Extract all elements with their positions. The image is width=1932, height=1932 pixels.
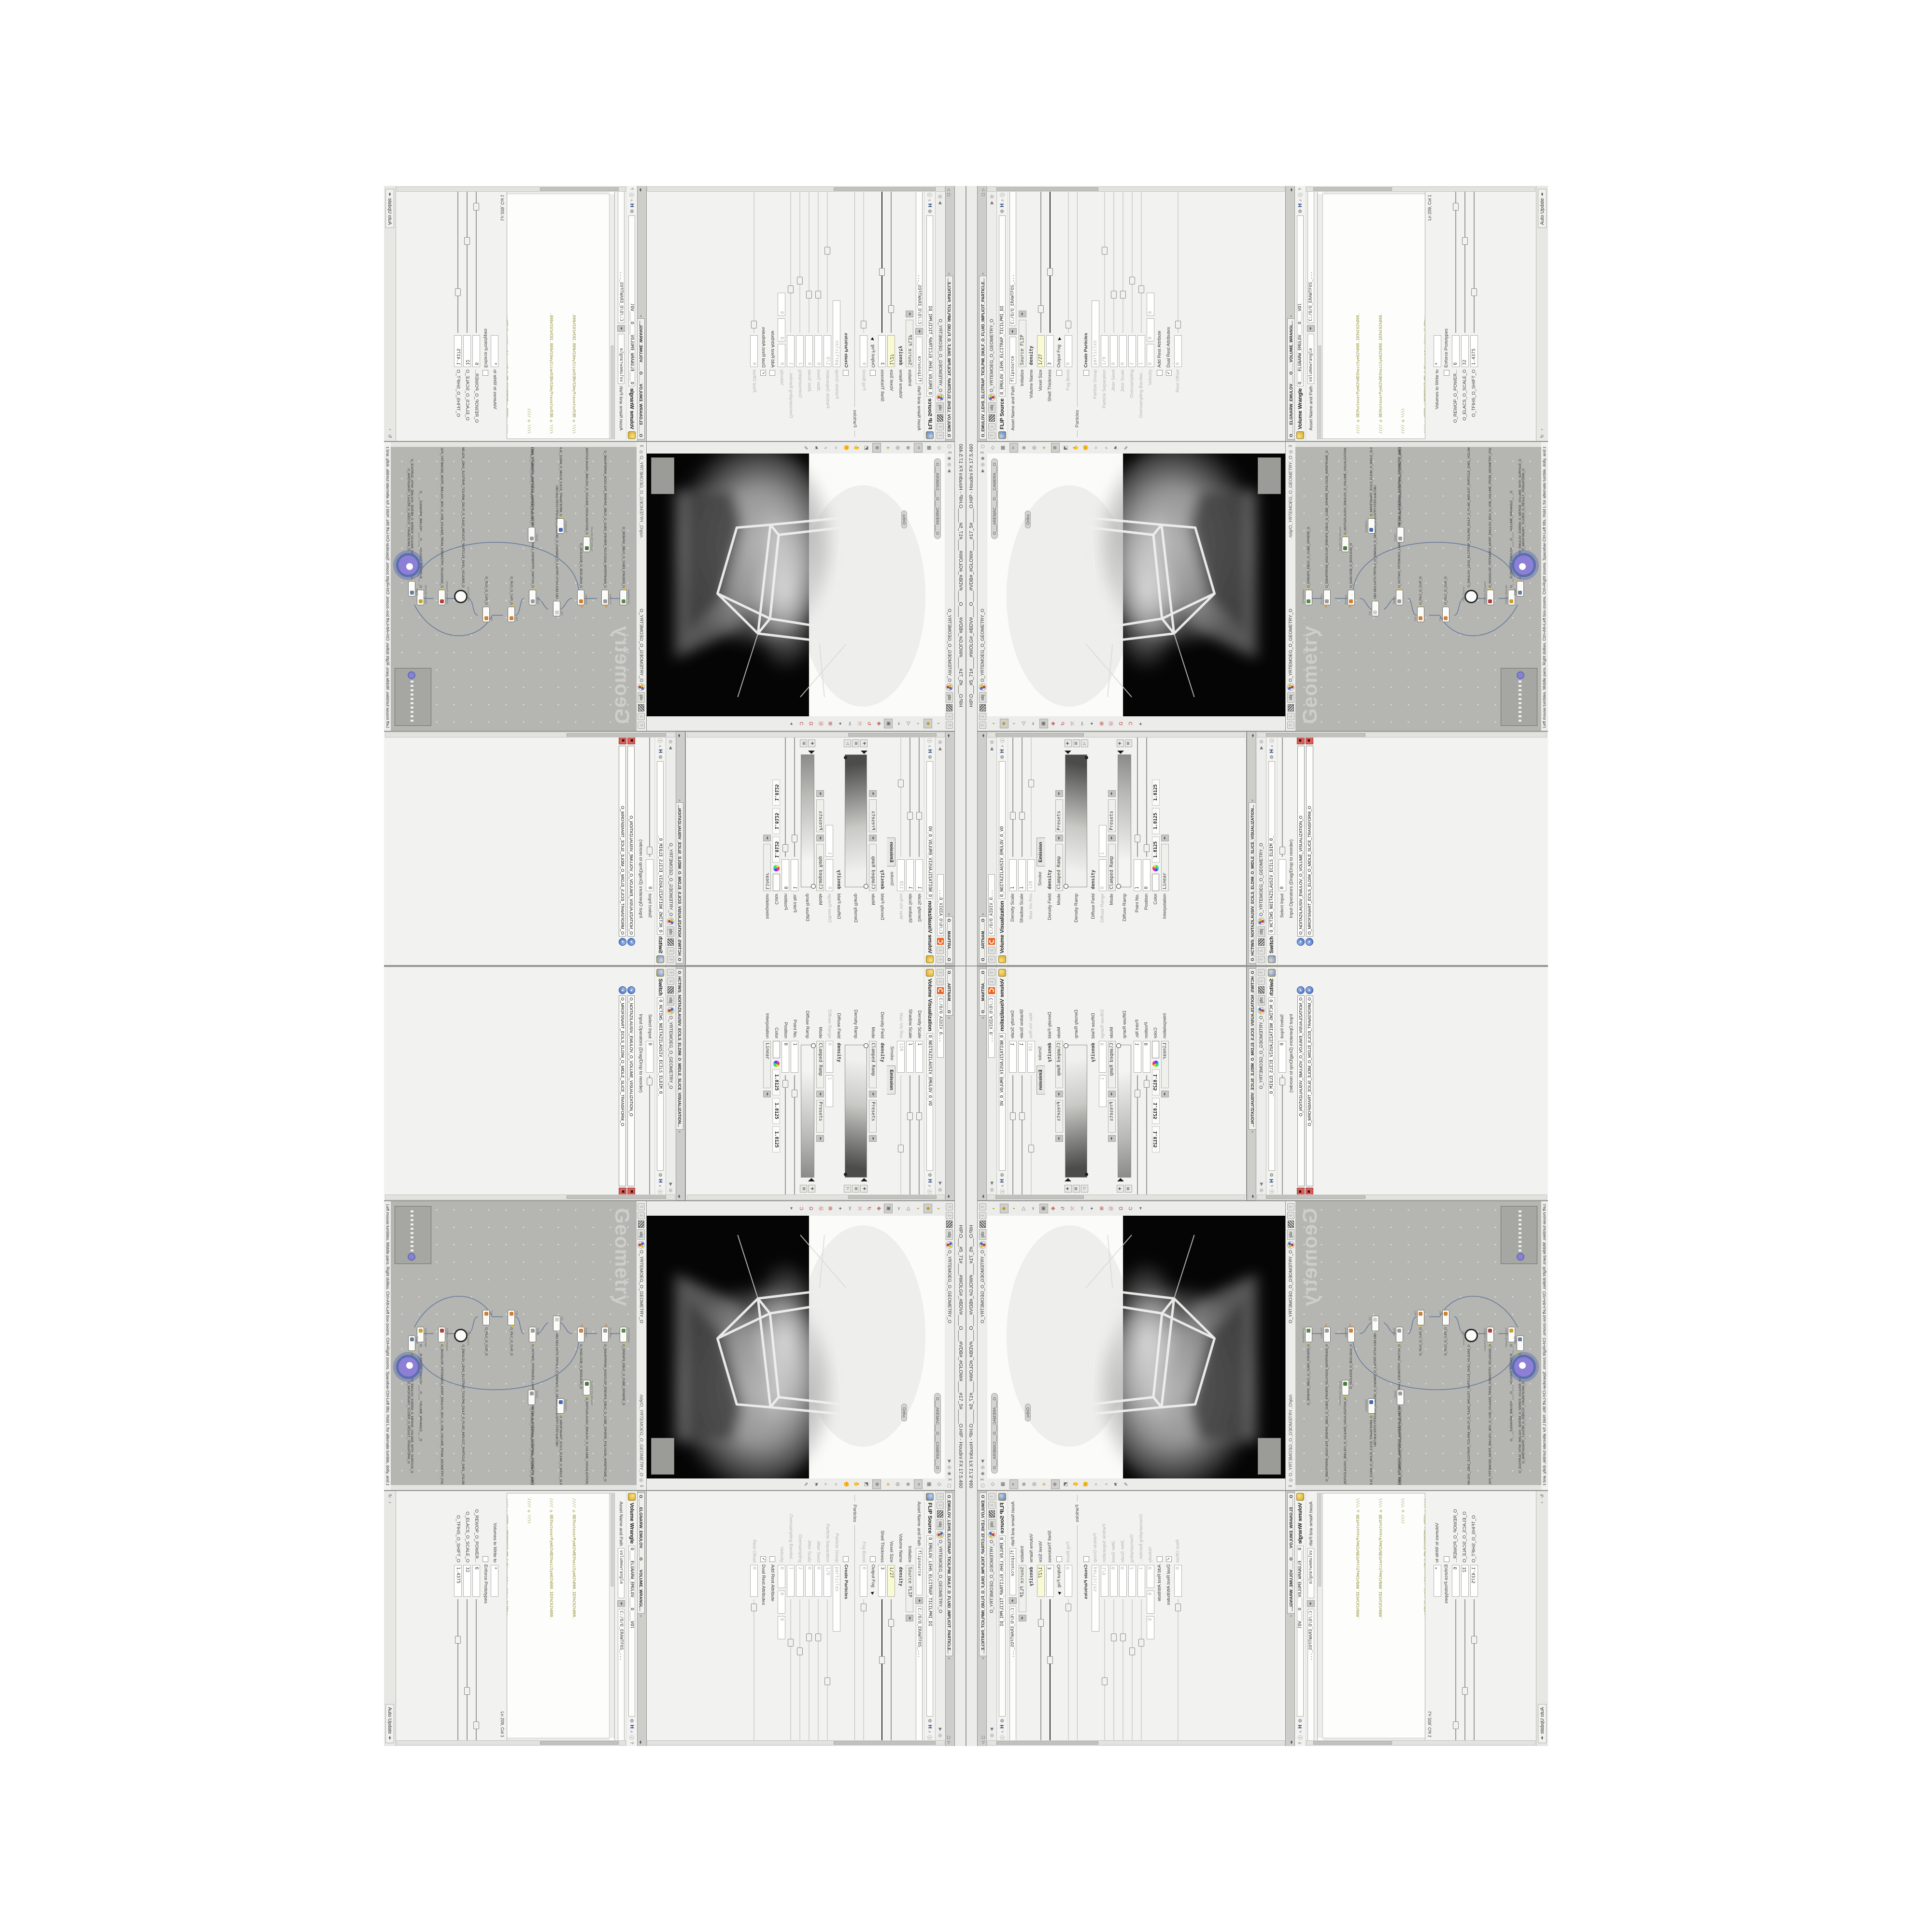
gear-icon[interactable]: ⚙	[1000, 209, 1005, 213]
shift-field[interactable]: 1.4375	[1470, 335, 1478, 367]
ramp-add-icon[interactable]: ✚	[1117, 1185, 1124, 1193]
voxel-size-slider[interactable]	[891, 191, 892, 333]
breadcrumb-path[interactable]: O_YRTEMOEG_O_GEOMETRY_O	[668, 1016, 674, 1181]
diffuse-range-max[interactable]: 1	[826, 1075, 834, 1107]
oversampling-slider[interactable]	[1132, 191, 1133, 333]
dropdown-arrows-icon[interactable]: ◂▸	[915, 328, 923, 335]
node-clip-2[interactable]: ClipO_PILC_O_CLIP_O	[1442, 607, 1449, 622]
node-name-field[interactable]: O_NOITAZILAUSIV_EMULOV_O_VO	[999, 761, 1006, 899]
select-mode-icon[interactable]: ▣	[884, 719, 893, 728]
search-icon[interactable]: ⌕	[1000, 199, 1005, 201]
diffuse-range-min[interactable]: 0	[1099, 859, 1107, 891]
pane-split-icon[interactable]: ◂▸	[946, 733, 951, 738]
tab-wrangle-pane[interactable]: O____ELGNARW_EMULOV____O____VOLUME_WRANG…	[1287, 1492, 1294, 1614]
search-icon[interactable]: ⌕	[927, 1731, 933, 1733]
pin-icon[interactable]: ⊼	[639, 1484, 644, 1488]
node-file[interactable]: FileOBJ.ND1.PETS.TRFOLS_O_55MOEG_O_GEOM5…	[553, 601, 560, 616]
position-field[interactable]: 0	[1143, 1041, 1151, 1073]
pen-icon[interactable]: ✎	[801, 443, 809, 452]
power-slider[interactable]	[1455, 1599, 1456, 1741]
close-icon[interactable]: ×	[981, 912, 986, 915]
vex-snippet-editor[interactable]: ▲ //// ◎ 0D3%steserPym62%0D3%eziSym62%00…	[1317, 188, 1425, 439]
blue-sphere-icon[interactable]: ◉	[947, 456, 952, 461]
particle-separation-field[interactable]: 1/9	[1101, 335, 1108, 367]
play-icon[interactable]: ▶	[989, 1727, 994, 1732]
voxel-size-slider[interactable]	[1040, 191, 1041, 333]
mouse-right-icon[interactable]: ◗	[1010, 719, 1018, 728]
node-cube-sphere[interactable]: CubeSphereO_EREHPS_EBUC_O_CUBE_SPHERE_O	[1305, 1327, 1312, 1342]
power-field[interactable]: 6	[1452, 1565, 1460, 1597]
max-vis-res-field[interactable]: 128	[1027, 859, 1035, 891]
color-swatch[interactable]	[1152, 874, 1159, 891]
ramp-add-icon[interactable]: ✚	[1117, 739, 1124, 747]
ramp-add-icon[interactable]: ✚	[808, 1185, 815, 1193]
camera-lock-icon[interactable]: ⌗	[914, 1479, 923, 1489]
oversampling-bandwidth-field[interactable]: 1	[1137, 335, 1145, 367]
flag-icon[interactable]: ⚑	[811, 1480, 819, 1489]
info-icon[interactable]: ⓘ	[1268, 1189, 1275, 1194]
play-icon[interactable]: ▶	[947, 1459, 952, 1463]
network-minimap[interactable]	[395, 1206, 431, 1264]
breadcrumb-path[interactable]: O_YRTEMOEG_O_GEOMETRY_O	[1259, 751, 1264, 916]
tab-switch-pane[interactable]: O_HCTIWS_NOITAZILAUSIV_ECILS_ELDIM_O_MID…	[676, 968, 683, 1130]
volume-name-field[interactable]: density	[1028, 1565, 1036, 1597]
close-icon[interactable]: ×	[981, 1657, 986, 1661]
shift-field[interactable]: 1.4375	[455, 335, 462, 367]
color-g-field[interactable]: 1.8125	[1152, 1098, 1160, 1124]
radial-menu-icon[interactable]: ◎	[1288, 1478, 1293, 1483]
close-icon[interactable]: ×	[676, 798, 682, 802]
scrollbar[interactable]	[1257, 1194, 1547, 1200]
search-icon[interactable]: ⌕	[1269, 745, 1275, 747]
jitter-seed-slider[interactable]	[1113, 1599, 1114, 1741]
dropdown-arrows-icon[interactable]: ◂▸	[1019, 1615, 1026, 1621]
power-slider[interactable]	[1455, 191, 1456, 333]
forward-arrow-icon[interactable]: ⇩	[638, 1212, 645, 1219]
dropdown-arrows-icon[interactable]: ◂▸	[1108, 1091, 1116, 1097]
diffuse-mode-dropdown[interactable]: Clamped Ramp	[817, 844, 824, 891]
select-mode-icon[interactable]: ▣	[884, 1204, 893, 1213]
cut-icon[interactable]: ✂	[845, 719, 853, 728]
info-icon[interactable]: ⓘ	[999, 192, 1006, 197]
diffuse-range-min[interactable]: 0	[826, 859, 834, 891]
info-icon[interactable]: ⓘ	[628, 1735, 635, 1740]
node-flip-source[interactable]: FLIP SourceO_EMULOV_LEHS_ELCITRAP_TICILP…	[454, 590, 468, 603]
tab-emission[interactable]: Emission	[1037, 1065, 1045, 1094]
back-icon[interactable]: ◁	[1020, 1204, 1028, 1213]
pen-icon[interactable]: ✎	[801, 1480, 809, 1489]
position-slider[interactable]	[785, 737, 786, 857]
node-name-field[interactable]: O_HCTIWS_NOITAZILAUSIV_ECILS_ELDIM_O_	[657, 761, 664, 935]
jitter-scale-field[interactable]: 0	[1119, 335, 1127, 367]
code-hscroll[interactable]	[1318, 194, 1323, 439]
shell-thickness-field[interactable]: 3	[1046, 335, 1054, 367]
jitter-scale-slider[interactable]	[809, 191, 810, 333]
tab-wrangle-pane[interactable]: O____ELGNARW_EMULOV____O____VOLUME_WRANG…	[638, 318, 645, 440]
shell-thickness-slider[interactable]	[1050, 1599, 1051, 1741]
ramp-expand-icon[interactable]: ▷	[1081, 1185, 1088, 1193]
play-icon[interactable]: ▶	[947, 469, 952, 473]
point-no-field[interactable]: 1	[1134, 859, 1141, 891]
axis-icon[interactable]: ✦	[1089, 1204, 1096, 1213]
tab-emission[interactable]: Emission	[1037, 838, 1045, 867]
scrollbar[interactable]	[1295, 1485, 1541, 1490]
radial-menu-icon[interactable]: ◎	[1259, 739, 1264, 744]
clapper-icon[interactable]	[1258, 938, 1264, 946]
color-wheel-icon[interactable]	[1152, 1061, 1159, 1067]
radial-menu-icon[interactable]: ◎	[668, 1188, 674, 1193]
dropdown-arrows-icon[interactable]: ◂▸	[1108, 835, 1116, 841]
input-operator-0[interactable]: O_NOITAZILAUSIV_EMULOV_O_VOLUME_VISUALIZ…	[1297, 746, 1305, 937]
node-name-field[interactable]: O____ELGNARW_EMULOV____O____VOl	[628, 215, 635, 386]
close-icon[interactable]: ×	[638, 314, 643, 317]
forward-arrow-icon[interactable]: ⇩	[946, 1212, 953, 1219]
obj-tab[interactable]: obj	[979, 692, 986, 703]
forward-arrow-icon[interactable]: ⇩	[937, 423, 944, 430]
ramp-expand-icon[interactable]: ▷	[1081, 739, 1088, 747]
color-r-field[interactable]: 1.8125	[773, 1069, 781, 1095]
info-icon[interactable]: ⓘ	[999, 1735, 1006, 1740]
clapper-icon[interactable]	[989, 414, 995, 422]
radial-menu-icon[interactable]: ◎	[938, 740, 943, 745]
shade-icon[interactable]: ⊗	[904, 1480, 911, 1489]
diffuse-presets-dropdown[interactable]: Presets	[817, 1100, 824, 1133]
node-volume-visualization[interactable]: Volume VisualizationO_NOITAZILAUSIV_EMUL…	[1342, 1380, 1349, 1395]
density-ramp[interactable]	[845, 754, 867, 887]
point-no-slider[interactable]	[795, 1075, 796, 1195]
fog-boost-field[interactable]: 0	[860, 335, 868, 367]
pane-split-icon[interactable]: ◂▸	[981, 733, 986, 738]
node-polywire[interactable]: PolyWireO_EMARFERIW_NOGYLOP_EREHPS_EBUC_…	[1323, 590, 1331, 605]
velocity-y-field[interactable]: 0	[778, 318, 786, 341]
translate-gizmo-icon[interactable]: ✥	[874, 719, 882, 728]
key-icon[interactable]: ○	[1093, 443, 1100, 452]
pin-icon[interactable]: ⊼	[1288, 1484, 1293, 1488]
mouse-right-icon[interactable]: ◗	[1010, 1204, 1018, 1213]
help-icon[interactable]: H	[657, 1179, 663, 1183]
dropdown-arrows-icon[interactable]: ◂▸	[817, 835, 824, 841]
recook-icon[interactable]: ↻	[387, 1494, 393, 1498]
magnify-icon[interactable]: ⌕	[822, 443, 829, 452]
info-icon[interactable]: ⓘ	[1268, 738, 1275, 743]
close-icon[interactable]: ×	[981, 1017, 986, 1020]
remove-icon[interactable]: ✖	[627, 737, 635, 744]
select-input-slider[interactable]	[1282, 737, 1283, 857]
radial-menu-icon[interactable]: ◎	[938, 1188, 943, 1193]
node-cube-sphere[interactable]: CubeSphereO_EREHPS_EBUC_O_CUBE_SPHERE_O	[620, 590, 627, 605]
node-cube-sphere[interactable]: CubeSphereO_EREHPS_EBUC_O_CUBE_SPHERE_O	[620, 1327, 627, 1342]
shadow-scale-slider[interactable]	[910, 737, 911, 857]
reorder-arrow-icon[interactable]: ◂	[1297, 986, 1305, 994]
reorder-arrow-icon[interactable]: ◂	[627, 938, 635, 946]
node-boolean[interactable]: BooleanO_NAELOOB_O_BOOLEAN_O	[577, 590, 584, 605]
scale-field[interactable]: 32	[1461, 1565, 1469, 1597]
axis-icon[interactable]: ✦	[836, 1204, 843, 1213]
viewport-canvas[interactable]: O___AREMAC___O___CAMERA___O Ortho	[987, 1216, 1286, 1478]
flag-icon[interactable]: ⚑	[1113, 1480, 1121, 1489]
node-name-field[interactable]: O_EMULOV_LEHS_ELCITRAP_TICILPMI_DI	[999, 1535, 1006, 1717]
voxel-size-field[interactable]: 1/27	[888, 1565, 895, 1597]
density-presets-dropdown[interactable]: Presets	[869, 799, 877, 832]
cut-icon[interactable]: ✂	[1079, 719, 1087, 728]
density-mode-dropdown[interactable]: Clamped Ramp	[869, 1041, 877, 1088]
tab-emission[interactable]: Emission	[887, 1065, 895, 1094]
rest-offset-slider[interactable]	[1178, 191, 1179, 333]
ramp-add-icon[interactable]: ✚	[1065, 739, 1072, 747]
gear-icon[interactable]: ⚙	[629, 1719, 635, 1723]
gear-icon[interactable]: ⚙	[1269, 755, 1275, 759]
forward-arrow-icon[interactable]: ⇩	[937, 978, 944, 985]
asset-name-field[interactable]: flipsource	[1009, 1548, 1016, 1595]
pane-split-icon[interactable]: ◂▸	[1250, 1194, 1256, 1199]
viewport-canvas[interactable]: O___AREMAC___O___CAMERA___O Ortho	[646, 454, 945, 716]
color-swatch[interactable]	[1152, 1041, 1159, 1058]
help-icon[interactable]: H	[1297, 1725, 1303, 1729]
headlight-icon[interactable]: ◎	[894, 1480, 901, 1489]
forward-arrow-icon[interactable]: ⇩	[668, 947, 675, 954]
node-name-field[interactable]: O_HCTIWS_NOITAZILAUSIV_ECILS_ELDIM_O_	[657, 997, 664, 1171]
maximize-icon[interactable]: ▢	[980, 444, 985, 449]
camera-menu-pill[interactable]: O___AREMAC___O___CAMERA___O	[934, 458, 941, 539]
translate-gizmo-icon[interactable]: ✥	[874, 1204, 882, 1213]
info-icon[interactable]: ⓘ	[926, 192, 933, 197]
search-icon[interactable]: ⌕	[629, 1731, 635, 1733]
color-g-field[interactable]: 1.8125	[1152, 808, 1160, 834]
tab-mantra[interactable]: O____ARTNAM____O	[979, 968, 986, 1016]
node-clip-1[interactable]: ClipO_PILC_O_CLIP_O	[1417, 607, 1424, 622]
oversampling-slider[interactable]	[800, 1599, 801, 1741]
cut-icon[interactable]: ✂	[845, 1204, 853, 1213]
shell-thickness-slider[interactable]	[882, 1599, 883, 1741]
mantra-output-path[interactable]: C:/O/O_AIDIV_O...	[937, 996, 944, 1058]
ortho-pill[interactable]: Ortho	[901, 1404, 907, 1421]
flag-icon[interactable]: ⚑	[1113, 443, 1121, 452]
network-canvas[interactable]: Geometry	[391, 447, 637, 731]
obj-tab[interactable]: obj	[1287, 1229, 1294, 1240]
enforce-prototypes-checkbox[interactable]	[1444, 1556, 1449, 1562]
node-flip-source[interactable]: FLIP SourceO_EMULOV_LEHS_ELCITRAP_TICILP…	[1464, 590, 1478, 603]
snap-edge-icon[interactable]: Ω	[1118, 719, 1125, 728]
jitter-seed-field[interactable]: 0	[815, 335, 823, 367]
volume-name-field[interactable]: density	[897, 335, 905, 367]
initialize-dropdown[interactable]: Source FLIP	[1019, 320, 1026, 367]
play-icon[interactable]: ▶	[938, 1181, 943, 1186]
diffuse-presets-dropdown[interactable]: Presets	[817, 799, 824, 832]
diffuse-range-min[interactable]: 0	[826, 1041, 834, 1073]
ortho-pill[interactable]: Ortho	[901, 511, 907, 528]
power-slider[interactable]	[476, 1599, 477, 1741]
ramp-delete-icon[interactable]: ⊠	[1125, 1185, 1132, 1193]
search-icon[interactable]: ⌕	[1298, 199, 1303, 201]
back-arrow-icon[interactable]: ⇧	[937, 432, 944, 439]
color-b-field[interactable]: 1.8125	[1152, 780, 1160, 806]
gear-icon[interactable]: ⚙	[629, 209, 635, 213]
play-icon[interactable]: ▶	[1259, 1182, 1264, 1187]
node-clip-1[interactable]: ClipO_PILC_O_CLIP_O	[1417, 1310, 1424, 1325]
pen-icon[interactable]: ✎	[1123, 1480, 1131, 1489]
dropdown-arrows-icon[interactable]: ◂▸	[764, 835, 771, 841]
ramp-add-icon[interactable]: ✚	[861, 739, 868, 747]
ramp-delete-icon[interactable]: ⊠	[852, 1185, 860, 1193]
rest-offset-field[interactable]: 0	[751, 1565, 758, 1597]
node-name-field[interactable]: O____ELGNARW_EMULOV____O____VOl	[628, 1546, 635, 1717]
maximize-icon[interactable]: ▢	[947, 1483, 952, 1488]
shell-thickness-field[interactable]: 3	[879, 1565, 886, 1597]
enforce-prototypes-checkbox[interactable]	[1444, 370, 1449, 376]
camera-lock-icon[interactable]: ⌗	[914, 443, 923, 453]
play-icon[interactable]: ▶	[938, 1727, 943, 1732]
scale-field[interactable]: 32	[1461, 335, 1469, 367]
diffuse-presets-dropdown[interactable]: Presets	[1108, 799, 1116, 832]
pane-split-icon[interactable]: ▷	[981, 187, 986, 191]
particle-group-field[interactable]: particles	[833, 300, 841, 367]
voxel-size-slider[interactable]	[1040, 1599, 1041, 1741]
density-scale-slider[interactable]	[919, 1075, 920, 1195]
gear-icon[interactable]: ⚙	[1269, 1173, 1275, 1177]
pin-icon[interactable]: ⊼	[947, 451, 952, 455]
info-icon[interactable]: ⓘ	[999, 1189, 1006, 1194]
particle-separation-slider[interactable]	[1104, 191, 1105, 333]
dropdown-arrows-icon[interactable]: ◂▸	[1009, 328, 1017, 335]
shadow-scale-slider[interactable]	[1022, 737, 1023, 857]
particle-group-field[interactable]: particles	[1092, 1565, 1099, 1632]
diffuse-range-min[interactable]: 0	[1099, 1041, 1107, 1073]
more-icon[interactable]: ▸	[1137, 719, 1145, 728]
radial-menu-icon[interactable]: ◎	[668, 739, 674, 744]
radial-menu-icon[interactable]: ◎	[639, 450, 644, 455]
rest-offset-field[interactable]: 0	[1174, 1565, 1182, 1597]
back-arrow-icon[interactable]: ⇧	[937, 1493, 944, 1500]
shell-thickness-field[interactable]: 3	[879, 335, 886, 367]
pane-split-icon[interactable]: ◂▸	[638, 187, 643, 192]
shell-thickness-slider[interactable]	[882, 191, 883, 333]
fog-boost-slider[interactable]	[1068, 191, 1069, 333]
close-icon[interactable]: ×	[1289, 314, 1294, 317]
blue-sphere-icon[interactable]: ◉	[980, 456, 985, 461]
play-icon[interactable]: ▶	[980, 1459, 985, 1463]
jitter-seed-slider[interactable]	[1113, 191, 1114, 333]
position-field[interactable]: 0	[1143, 859, 1151, 891]
scrollbar[interactable]	[1295, 442, 1541, 447]
asset-name-field[interactable]: flipsource	[916, 1548, 923, 1595]
select-cursor-icon[interactable]: ➢	[1030, 719, 1037, 728]
back-arrow-icon[interactable]: ⇧	[988, 1493, 995, 1500]
snap-curve-icon[interactable]: Ɔ	[797, 719, 805, 728]
max-vis-res-field[interactable]: 128	[1027, 1041, 1035, 1073]
diffuse-field-field[interactable]: density	[1090, 859, 1097, 891]
info-icon[interactable]: ⓘ	[999, 738, 1006, 743]
question-icon[interactable]: ?	[1298, 1742, 1303, 1744]
back-arrow-icon[interactable]: ⇧	[937, 956, 944, 963]
gear-icon[interactable]: ⚙	[1000, 1173, 1005, 1177]
power-field[interactable]: 6	[1452, 335, 1460, 367]
forward-arrow-icon[interactable]: ⇩	[946, 713, 953, 720]
node-switch-geometry[interactable]: SwitchO_HCTIWS_YRTEMOEG_LANRETXE_LANRETN…	[529, 590, 536, 605]
light-icon[interactable]: ☀	[1041, 443, 1049, 452]
forward-arrow-icon[interactable]: ⇩	[1287, 1212, 1294, 1219]
dropdown-arrows-icon[interactable]: ◂▸	[1161, 835, 1169, 841]
create-particles-checkbox[interactable]	[1083, 1556, 1089, 1562]
network-canvas[interactable]: Geometry	[1295, 447, 1541, 731]
jitter-seed-field[interactable]: 0	[1110, 335, 1118, 367]
point-no-field[interactable]: 1	[791, 859, 799, 891]
breadcrumb-path[interactable]: O_YRTEMOEG_O_GEOMETRY_O	[947, 1250, 952, 1458]
ramp-expand-icon[interactable]: ▷	[844, 1185, 852, 1193]
radial-menu-icon[interactable]: ◎	[639, 1478, 644, 1483]
tumble-hand-icon[interactable]: ✋	[852, 443, 860, 452]
back-arrow-icon[interactable]: ⇧	[937, 969, 944, 976]
play-icon[interactable]: ▶	[668, 1182, 674, 1187]
network-canvas[interactable]: Geometry	[391, 1201, 637, 1485]
back-arrow-icon[interactable]: ⇧	[1258, 969, 1265, 976]
snap-point-icon[interactable]: Ⓤ	[816, 1204, 824, 1213]
key-icon[interactable]: ○	[832, 443, 839, 452]
recook-icon[interactable]: ↻	[387, 434, 393, 438]
max-vis-res-field[interactable]: 128	[897, 859, 905, 891]
blue-sphere-icon[interactable]: ◉	[947, 1471, 952, 1476]
node-clip-2[interactable]: ClipO_PILC_O_CLIP_O	[1442, 1310, 1449, 1325]
node-boolean[interactable]: BooleanO_NAELOOB_O_BOOLEAN_O	[1348, 590, 1355, 605]
node-transform-slice[interactable]: TransformO_MROFSNART_ECILS_ELDIM_O_MIDLE…	[1368, 1398, 1375, 1414]
velocity-y-field[interactable]: 0	[1147, 318, 1154, 341]
shadow-scale-field[interactable]: 1	[907, 859, 914, 891]
search-icon[interactable]: ⌕	[629, 199, 635, 201]
play-icon[interactable]: ▶	[980, 469, 985, 473]
particle-separation-field[interactable]: 1/9	[824, 1565, 832, 1597]
max-vis-res-slider[interactable]	[1031, 737, 1032, 857]
node-result-transform-selected[interactable]: Transform O_MROFSNART_TLUSER_O_RESULT_TR…	[1512, 553, 1536, 577]
oversampling-field[interactable]: 2	[796, 1565, 804, 1597]
power-field[interactable]: 6	[473, 335, 481, 367]
obj-tab[interactable]: obj	[1258, 926, 1265, 937]
oversampling-bandwidth-slider[interactable]	[791, 1599, 792, 1741]
search-icon[interactable]: ⌕	[927, 199, 933, 201]
flag-icon[interactable]: ⚑	[811, 443, 819, 452]
radial-menu-icon[interactable]: ◎	[989, 1188, 994, 1193]
view-cube-icon[interactable]: ◩	[1062, 1480, 1070, 1489]
dropdown-arrows-icon[interactable]: ◂▸	[617, 1600, 625, 1607]
node-clip-2[interactable]: ClipO_PILC_O_CLIP_O	[483, 607, 490, 622]
rest-offset-field[interactable]: 0	[751, 335, 758, 367]
auto-update-dropdown[interactable]: Auto Update ◂▸	[385, 189, 394, 228]
auto-update-dropdown[interactable]: Auto Update ◂▸	[1538, 189, 1547, 228]
velocity-y-field[interactable]: 0	[778, 1591, 786, 1614]
shadow-scale-field[interactable]: 1	[1018, 1041, 1026, 1073]
back-arrow-icon[interactable]: ⇧	[979, 1203, 986, 1210]
more-icon[interactable]: ▸	[787, 719, 795, 728]
node-volume-visualization[interactable]: Volume VisualizationO_NOITAZILAUSIV_EMUL…	[583, 1380, 590, 1395]
point-no-slider[interactable]	[795, 737, 796, 857]
mouse-middle-icon[interactable]: ◆	[923, 1204, 932, 1213]
dolly-hand-icon[interactable]: ✊	[1082, 1480, 1090, 1489]
search-icon[interactable]: ⌕	[1269, 1185, 1275, 1187]
gear-icon[interactable]: ⚙	[1298, 1719, 1303, 1723]
tab-smoke[interactable]: Smoke	[887, 867, 895, 890]
magnify-icon[interactable]: ⌕	[1103, 1480, 1110, 1489]
network-minimap[interactable]	[1501, 1206, 1537, 1264]
node-merge[interactable]: MergeO_ECAFRUS_HTIW_EMULOV_EGREM_O_MERGE…	[1517, 581, 1524, 597]
shadow-scale-slider[interactable]	[910, 1075, 911, 1195]
color-b-field[interactable]: 1.8125	[1152, 1126, 1160, 1152]
obj-tab[interactable]: obj	[668, 995, 675, 1006]
node-vdb-from-polygons[interactable]: VDB from PolygonsO_SNOGILOP_YRTEMOEG_MOR…	[1487, 1327, 1494, 1342]
input-operator-0[interactable]: O_NOITAZILAUSIV_EMULOV_O_VOLUME_VISUALIZ…	[628, 995, 635, 1186]
dual-rest-attributes-checkbox[interactable]: ✓	[761, 1556, 767, 1562]
dropdown-arrows-icon[interactable]: ◂▸	[1055, 1091, 1063, 1097]
help-icon[interactable]: H	[1297, 203, 1303, 207]
shift-slider[interactable]	[1474, 191, 1475, 333]
close-icon[interactable]: ×	[1250, 798, 1256, 802]
